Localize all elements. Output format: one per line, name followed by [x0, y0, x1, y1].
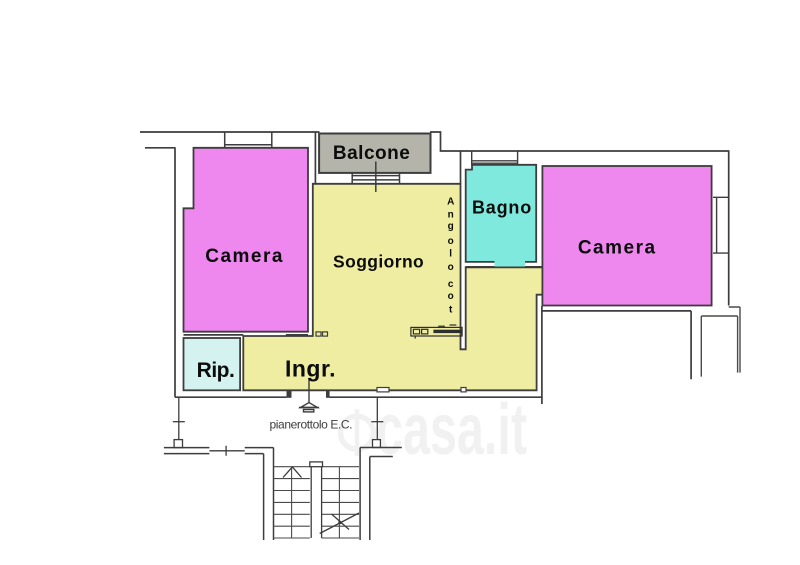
svg-text:Ingr.: Ingr. [285, 355, 336, 381]
svg-text:n: n [448, 209, 454, 220]
svg-text:o: o [448, 262, 454, 273]
svg-text:o: o [448, 291, 454, 302]
svg-text:Camera: Camera [205, 246, 284, 267]
svg-text:l: l [449, 248, 452, 259]
svg-text:pianerottolo E.C.: pianerottolo E.C. [270, 418, 353, 432]
svg-text:Balcone: Balcone [333, 143, 410, 164]
svg-text:A: A [447, 197, 454, 208]
svg-text:Soggiorno: Soggiorno [333, 251, 424, 271]
svg-text:Bagno: Bagno [472, 197, 532, 217]
svg-text:c: c [448, 279, 454, 290]
svg-text:Camera: Camera [578, 237, 657, 258]
svg-text:Rip.: Rip. [197, 359, 235, 382]
svg-text:casa.it: casa.it [376, 390, 527, 470]
svg-text:o: o [448, 236, 454, 247]
svg-text:g: g [448, 221, 454, 232]
